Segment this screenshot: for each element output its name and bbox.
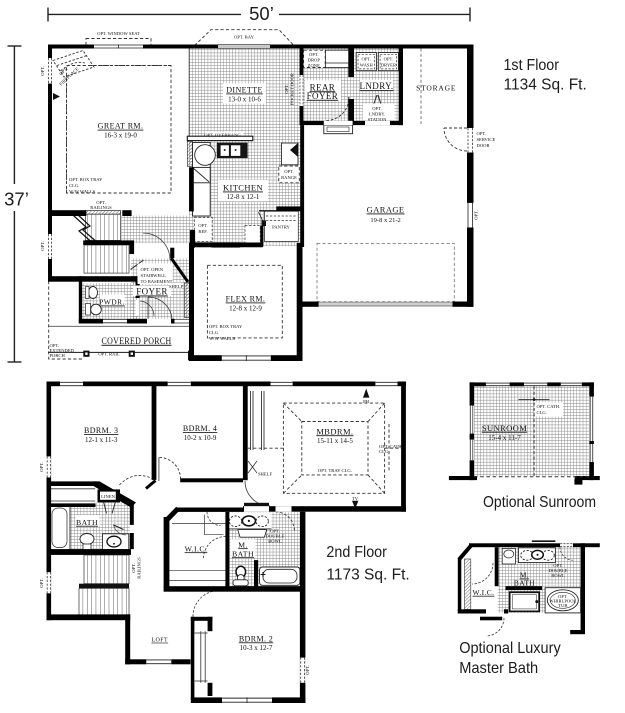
svg-text:DINETTE: DINETTE xyxy=(226,86,263,95)
svg-text:GREAT RM.: GREAT RM. xyxy=(98,122,144,131)
svg-text:19-8 x 21-2: 19-8 x 21-2 xyxy=(370,217,400,224)
svg-text:OPT.: OPT. xyxy=(284,169,294,174)
svg-text:STORAGE: STORAGE xyxy=(416,83,456,92)
svg-text:BDRM. 2: BDRM. 2 xyxy=(239,634,273,643)
svg-text:FOYER: FOYER xyxy=(307,91,339,101)
svg-text:OPT.: OPT. xyxy=(362,57,372,62)
svg-text:CLG.: CLG. xyxy=(69,183,79,188)
svg-text:10-2 x 10-9: 10-2 x 10-9 xyxy=(184,434,217,442)
svg-text:1st Floor: 1st Floor xyxy=(504,57,560,74)
svg-text:W.I.C.: W.I.C. xyxy=(473,588,495,597)
svg-text:CLG.: CLG. xyxy=(379,449,389,454)
svg-text:W.I.C.: W.I.C. xyxy=(185,544,208,553)
svg-text:1173 Sq. Ft.: 1173 Sq. Ft. xyxy=(326,567,409,584)
svg-text:TO BASEMENT: TO BASEMENT xyxy=(141,279,173,284)
svg-text:15-11 x 14-5: 15-11 x 14-5 xyxy=(317,437,353,445)
svg-text:W/W WALLS: W/W WALLS xyxy=(69,189,96,194)
svg-text:37’: 37’ xyxy=(4,189,29,210)
svg-text:2nd Floor: 2nd Floor xyxy=(326,544,387,561)
svg-text:KITCHEN: KITCHEN xyxy=(223,183,263,193)
svg-text:1134 Sq. Ft.: 1134 Sq. Ft. xyxy=(504,76,587,93)
svg-text:BDRM. 3: BDRM. 3 xyxy=(84,426,118,435)
svg-text:RAILINGS: RAILINGS xyxy=(90,205,112,210)
svg-text:Master Bath: Master Bath xyxy=(459,660,538,677)
svg-text:TUB: TUB xyxy=(558,603,567,608)
svg-text:OPT.: OPT. xyxy=(309,52,319,57)
svg-text:LINEN: LINEN xyxy=(101,494,115,499)
svg-text:COVERED PORCH: COVERED PORCH xyxy=(102,337,172,347)
svg-text:Optional Luxury: Optional Luxury xyxy=(459,640,561,657)
svg-text:OPT. RAIL: OPT. RAIL xyxy=(98,352,120,357)
svg-text:PH: PH xyxy=(363,399,370,404)
svg-text:BATH: BATH xyxy=(76,518,98,527)
svg-text:15-4 x 11-7: 15-4 x 11-7 xyxy=(488,434,521,442)
svg-text:W/W WALLS: W/W WALLS xyxy=(209,336,236,341)
svg-text:13-0 x 10-6: 13-0 x 10-6 xyxy=(228,96,261,104)
svg-text:OPT. TRAY CLG.: OPT. TRAY CLG. xyxy=(318,468,352,473)
svg-text:OPT.: OPT. xyxy=(40,241,45,251)
svg-text:SUNROOM: SUNROOM xyxy=(482,423,527,433)
svg-text:RAILINGS: RAILINGS xyxy=(137,557,142,579)
svg-text:STATION: STATION xyxy=(368,117,387,122)
svg-text:LOFT: LOFT xyxy=(151,638,168,644)
svg-text:BOWL: BOWL xyxy=(551,573,565,578)
svg-text:TV: TV xyxy=(352,496,359,501)
svg-text:STAIRWELL: STAIRWELL xyxy=(141,273,167,278)
svg-text:PANTRY: PANTRY xyxy=(272,225,290,230)
svg-text:OPT.: OPT. xyxy=(474,210,479,220)
svg-text:CLG.: CLG. xyxy=(209,330,219,335)
svg-text:Optional Sunroom: Optional Sunroom xyxy=(483,494,596,511)
svg-text:OPT.: OPT. xyxy=(477,131,487,136)
svg-text:FLEX RM.: FLEX RM. xyxy=(226,295,266,304)
svg-text:OPT. BOX TRAY: OPT. BOX TRAY xyxy=(209,324,243,329)
svg-text:50’: 50’ xyxy=(249,3,274,24)
svg-text:MBDRM.: MBDRM. xyxy=(316,426,353,436)
svg-text:OPT.: OPT. xyxy=(131,563,136,573)
svg-text:DOOR: DOOR xyxy=(477,143,491,148)
svg-text:BOWL: BOWL xyxy=(268,538,282,543)
svg-text:BATH: BATH xyxy=(232,549,254,558)
svg-text:12-8 x 12-9: 12-8 x 12-9 xyxy=(229,304,262,312)
svg-text:16-3 x 19-0: 16-3 x 19-0 xyxy=(104,131,137,139)
svg-text:LNDRY.: LNDRY. xyxy=(360,81,394,91)
svg-text:SHELF: SHELF xyxy=(258,472,272,477)
svg-text:POCKET DOOR: POCKET DOOR xyxy=(290,72,295,105)
svg-text:OPT. OPEN: OPT. OPEN xyxy=(141,267,164,272)
svg-text:DRYER: DRYER xyxy=(381,63,397,68)
svg-text:REF.: REF. xyxy=(198,229,207,234)
svg-text:OPT.: OPT. xyxy=(372,106,382,111)
svg-text:12-1 x 11-3: 12-1 x 11-3 xyxy=(85,436,118,444)
svg-text:CLG.: CLG. xyxy=(537,410,547,415)
svg-text:OPT.: OPT. xyxy=(384,57,394,62)
svg-text:10-3 x 12-7: 10-3 x 12-7 xyxy=(240,644,273,652)
svg-text:OPT. WINDOW SEAT: OPT. WINDOW SEAT xyxy=(97,31,140,36)
svg-text:GARAGE: GARAGE xyxy=(367,205,405,215)
svg-text:PWDR.: PWDR. xyxy=(99,298,125,307)
svg-text:OPT. BAY: OPT. BAY xyxy=(234,35,255,40)
svg-text:SHELF: SHELF xyxy=(169,284,183,289)
svg-text:BATH: BATH xyxy=(514,578,535,587)
svg-text:OPT. CATH.: OPT. CATH. xyxy=(537,404,561,409)
svg-text:OPT.: OPT. xyxy=(39,578,44,588)
svg-text:OPT. BOX TRAY: OPT. BOX TRAY xyxy=(69,177,103,182)
svg-text:OPT.: OPT. xyxy=(198,223,208,228)
svg-text:OPT.: OPT. xyxy=(39,462,44,472)
svg-text:OPT.: OPT. xyxy=(40,66,45,76)
svg-text:RANGE: RANGE xyxy=(281,175,297,180)
svg-text:DROP: DROP xyxy=(308,57,321,62)
svg-text:PORCH: PORCH xyxy=(50,353,66,358)
svg-text:SERVICE: SERVICE xyxy=(477,137,496,142)
svg-text:LNDRY.: LNDRY. xyxy=(369,111,385,116)
svg-text:ZONE: ZONE xyxy=(308,63,320,68)
svg-text:M.: M. xyxy=(238,540,248,549)
svg-text:12-8 x 12-1: 12-8 x 12-1 xyxy=(227,193,260,201)
svg-text:OPT.: OPT. xyxy=(305,665,310,675)
svg-text:OPT. OVERHANG: OPT. OVERHANG xyxy=(204,132,241,137)
svg-text:WASH: WASH xyxy=(360,63,374,68)
svg-text:FOYER: FOYER xyxy=(136,287,168,297)
svg-text:OPT.: OPT. xyxy=(284,84,289,94)
svg-text:BDRM. 4: BDRM. 4 xyxy=(183,424,217,433)
